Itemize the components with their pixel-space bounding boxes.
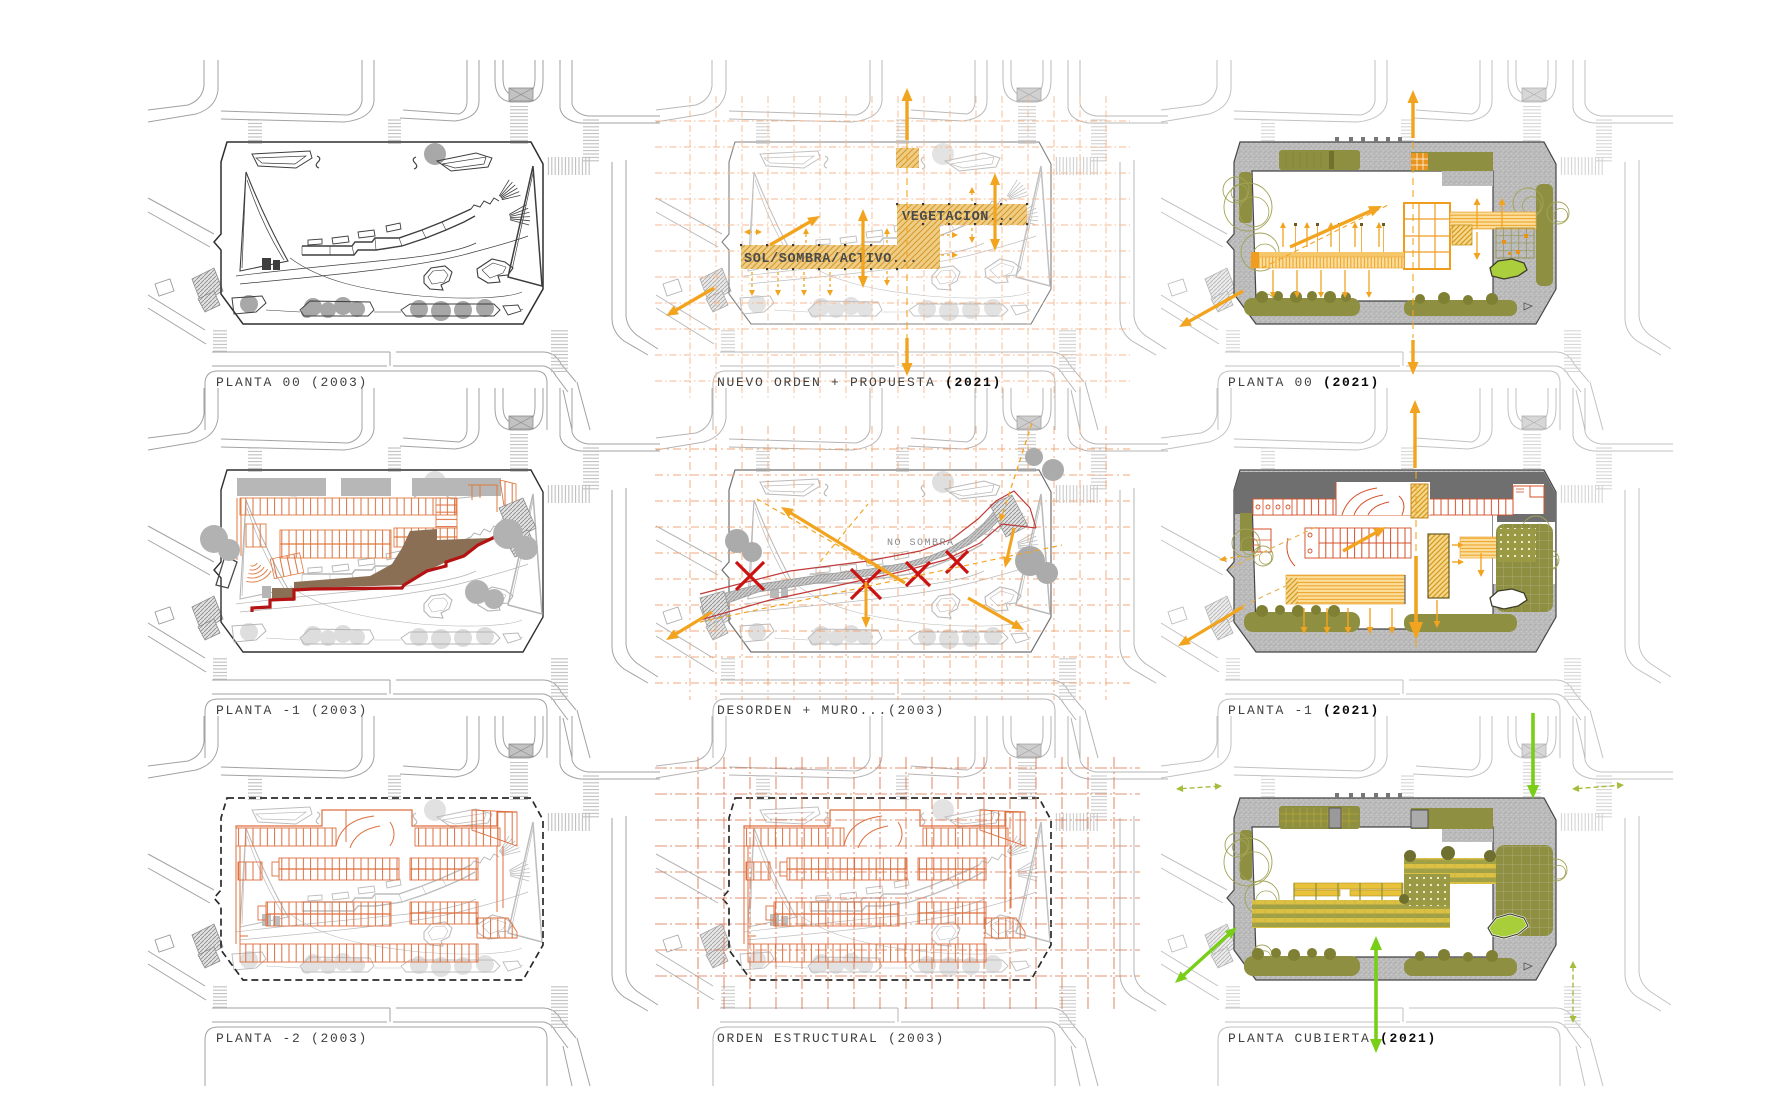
- svg-text:NUEVO ORDEN + PROPUESTA (2021): NUEVO ORDEN + PROPUESTA (2021): [717, 375, 1002, 390]
- svg-text:PLANTA -1 (2003): PLANTA -1 (2003): [216, 703, 368, 718]
- svg-text:DESORDEN + MURO...(2003): DESORDEN + MURO...(2003): [717, 703, 945, 718]
- svg-text:PLANTA 00 (2003): PLANTA 00 (2003): [216, 375, 368, 390]
- svg-text:PLANTA 00 (2021): PLANTA 00 (2021): [1228, 375, 1380, 390]
- svg-text:SOL/SOMBRA/ACTIVO...: SOL/SOMBRA/ACTIVO...: [744, 252, 918, 267]
- svg-text:ORDEN ESTRUCTURAL (2003): ORDEN ESTRUCTURAL (2003): [717, 1031, 945, 1046]
- svg-text:PLANTA -1 (2021): PLANTA -1 (2021): [1228, 703, 1380, 718]
- svg-text:NO SOMBRA: NO SOMBRA: [887, 538, 955, 549]
- svg-text:VEGETACION...: VEGETACION...: [902, 210, 1015, 225]
- svg-text:PLANTA CUBIERTA (2021): PLANTA CUBIERTA (2021): [1228, 1031, 1437, 1046]
- svg-text:PLANTA -2 (2003): PLANTA -2 (2003): [216, 1031, 368, 1046]
